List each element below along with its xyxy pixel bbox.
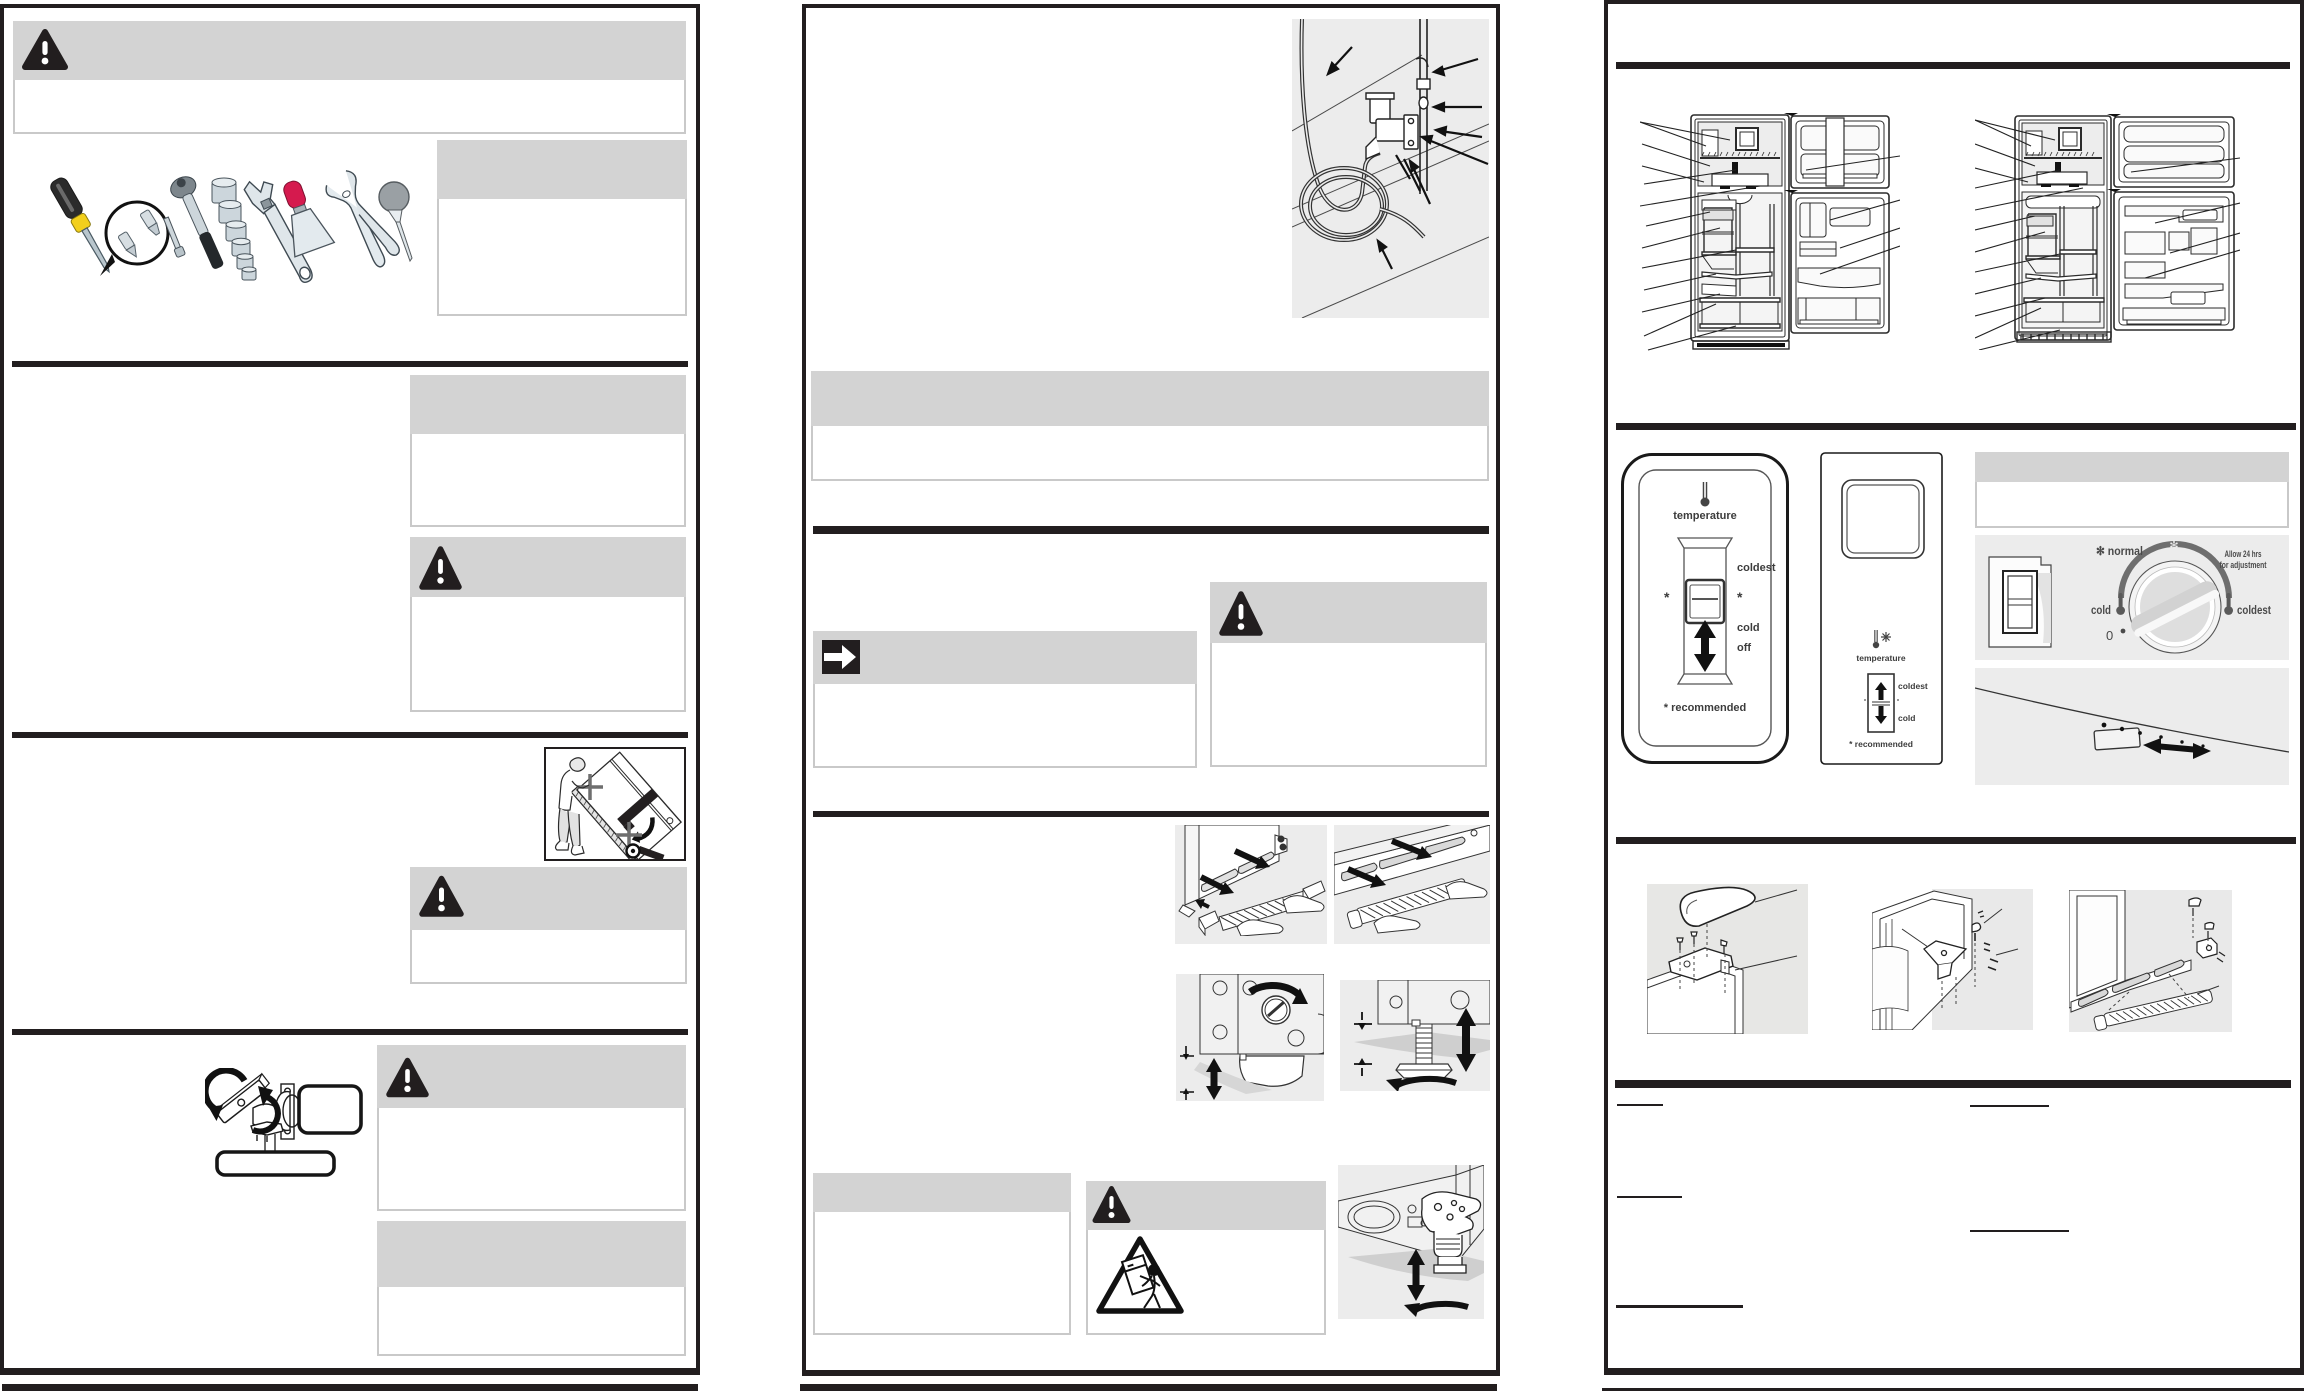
svg-text:✻ normal: ✻ normal	[2096, 544, 2143, 558]
svg-text:off: off	[1737, 642, 1751, 654]
svg-text:coldest: coldest	[1737, 562, 1776, 574]
svg-text:coldest: coldest	[2237, 603, 2271, 617]
svg-text:* recommended: * recommended	[1849, 739, 1913, 749]
svg-text:* recommended: * recommended	[1664, 702, 1747, 714]
svg-text:0: 0	[2106, 628, 2113, 643]
svg-text:temperature: temperature	[1673, 510, 1737, 522]
svg-text:*: *	[1737, 589, 1743, 605]
svg-text:for adjustment: for adjustment	[2220, 560, 2267, 570]
svg-text:Allow 24 hrs: Allow 24 hrs	[2225, 549, 2262, 559]
svg-text:✻: ✻	[2169, 540, 2178, 552]
svg-text:cold: cold	[1737, 622, 1760, 634]
svg-text:*: *	[1664, 589, 1670, 605]
svg-text:cold: cold	[2091, 603, 2111, 617]
svg-text:temperature: temperature	[1856, 653, 1905, 663]
svg-text:coldest: coldest	[1898, 681, 1928, 691]
svg-text:cold: cold	[1898, 713, 1915, 723]
